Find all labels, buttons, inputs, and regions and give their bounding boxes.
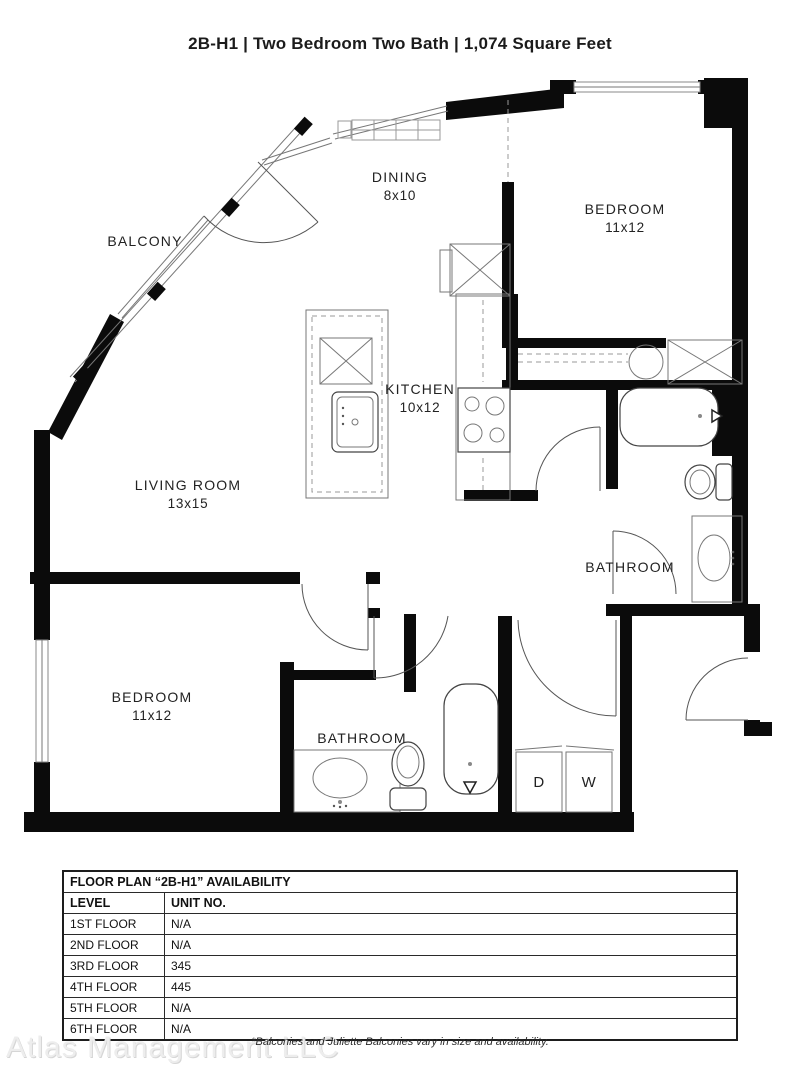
dining-baseboard-heater: [338, 120, 440, 140]
dining-window: [333, 106, 448, 139]
dryer-label: D: [533, 774, 544, 791]
level-cell: 4TH FLOOR: [63, 977, 165, 998]
wall-left-lower: [34, 762, 50, 816]
wall-laundry-left: [498, 616, 512, 822]
bedroom1-dims: 11x12: [605, 220, 645, 235]
kitchen-dims: 10x12: [400, 400, 441, 415]
wall-kitchen-right: [506, 294, 518, 384]
level-cell: 2ND FLOOR: [63, 935, 165, 956]
wall-bedroom2-right: [280, 662, 294, 824]
balcony-railing-inner: [70, 117, 305, 377]
bathroom2-vanity: [294, 750, 400, 812]
bathroom1-toilet: [685, 464, 732, 500]
bathroom2-label: BATHROOM: [317, 730, 406, 746]
bathroom1-label: BATHROOM: [585, 559, 674, 575]
bedroom2-door: [302, 584, 368, 650]
kitchen-sink: [332, 392, 378, 452]
unit-cell: N/A: [165, 914, 738, 935]
wall-top-step: [446, 88, 564, 120]
bedroom2-label: BEDROOM: [112, 689, 193, 705]
bathroom1-tub: [620, 388, 722, 446]
wall-living-bedroom2: [30, 572, 300, 584]
kitchen-stove: [458, 388, 510, 452]
unit-cell: 445: [165, 977, 738, 998]
table-header-row: LEVEL UNIT NO.: [63, 893, 737, 914]
table-row: 1ST FLOOR N/A: [63, 914, 737, 935]
bathroom2-tub: [444, 684, 498, 794]
laundry-units: [515, 746, 614, 812]
wall-bedroom1-bottom: [502, 338, 666, 348]
wall-closet-bottom: [502, 380, 748, 390]
living-room-dims: 13x15: [168, 496, 209, 511]
table-title-row: FLOOR PLAN “2B-H1” AVAILABILITY: [63, 871, 737, 893]
level-cell: 1ST FLOOR: [63, 914, 165, 935]
living-room-label: LIVING ROOM: [135, 477, 242, 493]
hall-kitchen-door: [536, 427, 600, 491]
table-row: 2ND FLOOR N/A: [63, 935, 737, 956]
table-row: 4TH FLOOR 445: [63, 977, 737, 998]
balcony-label: BALCONY: [107, 233, 182, 249]
bedroom2-window: [36, 640, 48, 762]
balcony-door: [204, 162, 318, 243]
floor-plan: BALCONY DINING 8x10 BEDROOM 11x12 KITCHE…: [0, 64, 800, 856]
bedroom2-dims: 11x12: [132, 708, 172, 723]
entry-door: [686, 652, 760, 720]
wall-bottom: [24, 812, 634, 832]
wall-left-upper: [34, 430, 50, 640]
wall-door-stub-a: [366, 572, 380, 584]
table-title: FLOOR PLAN “2B-H1” AVAILABILITY: [63, 871, 737, 893]
wall-bedroom1-top-left-stub: [550, 80, 576, 94]
kitchen-cabinet: [440, 244, 510, 296]
washer-label: W: [582, 774, 597, 791]
wall-hall-stub: [404, 614, 416, 692]
dining-label: DINING: [372, 169, 428, 185]
wall-bathroom1-left: [606, 389, 618, 489]
level-cell: 3RD FLOOR: [63, 956, 165, 977]
unit-cell: N/A: [165, 935, 738, 956]
column-header-level: LEVEL: [63, 893, 165, 914]
balcony-footnote: *Balconies and Juliette Balconies vary i…: [0, 1036, 800, 1048]
wall-entry-corner: [744, 722, 772, 736]
wall-bathroom1-bottom: [606, 604, 754, 616]
page-title: 2B-H1 | Two Bedroom Two Bath | 1,074 Squ…: [0, 34, 800, 54]
level-cell: 5TH FLOOR: [63, 998, 165, 1019]
bedroom1-label: BEDROOM: [585, 201, 666, 217]
dining-dims: 8x10: [384, 188, 416, 203]
column-header-unit: UNIT NO.: [165, 893, 738, 914]
wall-bathroom2-top: [282, 670, 376, 680]
bathroom2-toilet: [390, 742, 426, 810]
kitchen-label: KITCHEN: [385, 381, 455, 397]
table-row: 3RD FLOOR 345: [63, 956, 737, 977]
laundry-door: [518, 620, 616, 716]
unit-cell: 345: [165, 956, 738, 977]
wall-kitchen-bottom: [464, 490, 538, 501]
unit-cell: N/A: [165, 998, 738, 1019]
wall-laundry-right: [620, 616, 632, 822]
bedroom1-window: [574, 82, 700, 92]
availability-table: FLOOR PLAN “2B-H1” AVAILABILITY LEVEL UN…: [62, 870, 738, 1041]
table-row: 5TH FLOOR N/A: [63, 998, 737, 1019]
